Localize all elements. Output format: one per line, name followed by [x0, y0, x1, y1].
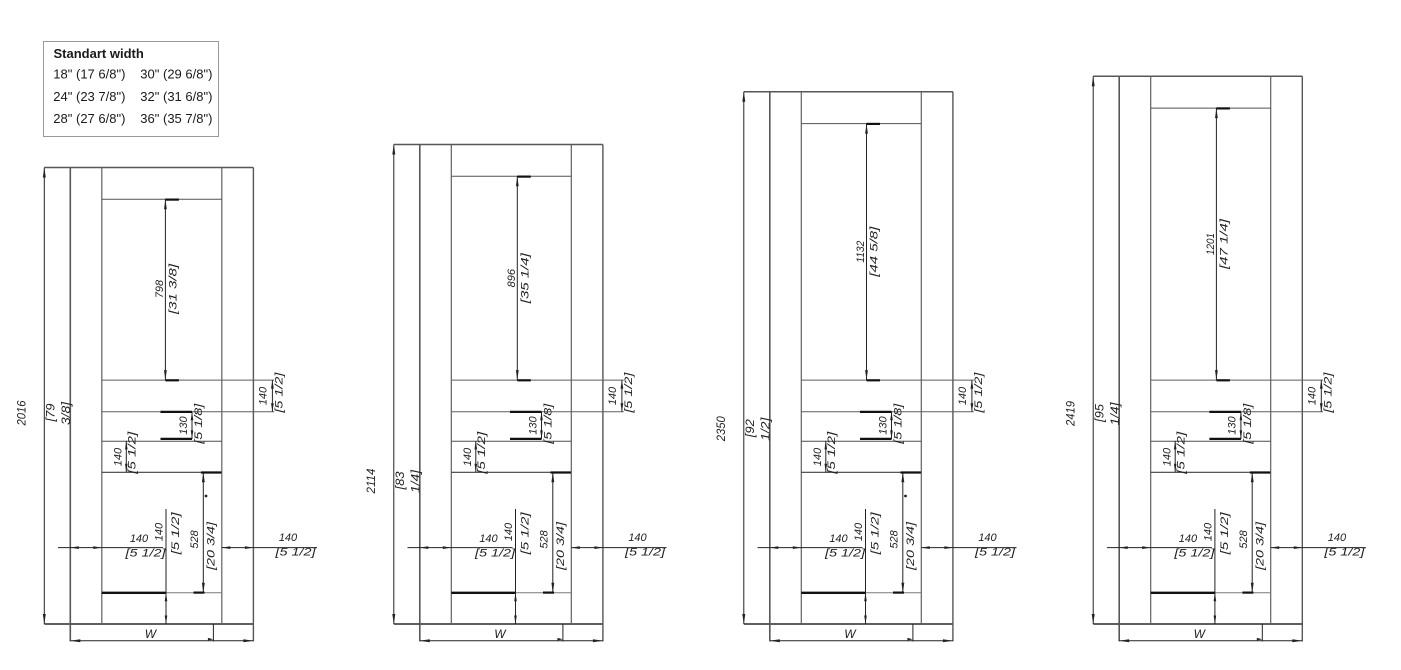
svg-text:140: 140	[1328, 532, 1347, 544]
svg-text:[20 3/4]: [20 3/4]	[1254, 521, 1266, 572]
svg-text:2419: 2419	[1063, 401, 1077, 427]
svg-text:130: 130	[1227, 415, 1239, 434]
svg-text:140: 140	[112, 447, 124, 466]
svg-text:[5 1/8]: [5 1/8]	[893, 402, 905, 445]
svg-text:[5 1/2]: [5 1/2]	[126, 431, 138, 476]
svg-text:528: 528	[1238, 529, 1250, 548]
svg-text:140: 140	[258, 386, 270, 405]
svg-text:[5 1/2]: [5 1/2]	[869, 511, 881, 556]
svg-text:140: 140	[503, 522, 515, 541]
svg-text:[20 3/4]: [20 3/4]	[206, 521, 218, 572]
svg-text:140: 140	[978, 532, 997, 544]
svg-text:30" (29 6/8"): 30" (29 6/8")	[140, 67, 212, 82]
svg-text:[20 3/4]: [20 3/4]	[905, 521, 917, 572]
svg-text:36" (35 7/8"): 36" (35 7/8")	[140, 111, 212, 126]
svg-text:[5 1/8]: [5 1/8]	[193, 402, 205, 445]
svg-text:528: 528	[889, 529, 901, 548]
svg-text:W: W	[844, 627, 857, 641]
svg-text:140: 140	[829, 533, 848, 545]
svg-text:140: 140	[1202, 522, 1214, 541]
svg-text:[5 1/2]: [5 1/2]	[973, 371, 985, 414]
svg-text:W: W	[1194, 627, 1207, 641]
svg-text:140: 140	[279, 532, 298, 544]
svg-text:[5 1/2]: [5 1/2]	[474, 547, 517, 559]
svg-text:528: 528	[189, 529, 201, 548]
svg-text:130: 130	[527, 415, 539, 434]
svg-text:[5 1/2]: [5 1/2]	[170, 511, 182, 556]
svg-text:2016: 2016	[15, 400, 29, 426]
svg-text:130: 130	[877, 415, 889, 434]
svg-text:[5 1/2]: [5 1/2]	[1219, 511, 1231, 556]
svg-text:32" (31 6/8"): 32" (31 6/8")	[140, 89, 212, 104]
svg-text:[95: [95	[1093, 404, 1107, 423]
svg-text:798: 798	[154, 279, 166, 298]
svg-text:2114: 2114	[364, 468, 378, 494]
svg-text:[35 1/4]: [35 1/4]	[519, 252, 531, 305]
svg-text:28" (27 6/8"): 28" (27 6/8")	[53, 111, 125, 126]
svg-text:140: 140	[1161, 447, 1173, 466]
svg-text:[5 1/2]: [5 1/2]	[624, 546, 667, 558]
svg-text:[5 1/2]: [5 1/2]	[1175, 431, 1187, 476]
svg-text:130: 130	[178, 415, 190, 434]
svg-text:140: 140	[479, 533, 498, 545]
svg-text:[5 1/2]: [5 1/2]	[476, 431, 488, 476]
svg-text:Standart width: Standart width	[54, 46, 144, 61]
svg-text:1/4]: 1/4]	[1108, 402, 1122, 426]
svg-text:[5 1/8]: [5 1/8]	[1242, 402, 1254, 445]
svg-text:140: 140	[957, 386, 969, 405]
svg-text:2350: 2350	[714, 416, 728, 442]
svg-text:[5 1/2]: [5 1/2]	[623, 371, 635, 414]
svg-text:[5 1/2]: [5 1/2]	[974, 546, 1017, 558]
svg-text:[5 1/2]: [5 1/2]	[826, 431, 838, 476]
svg-text:140: 140	[628, 532, 647, 544]
svg-text:[83: [83	[393, 471, 407, 490]
svg-text:[20 3/4]: [20 3/4]	[555, 521, 567, 572]
svg-text:[44 5/8]: [44 5/8]	[869, 225, 881, 278]
svg-text:[5 1/2]: [5 1/2]	[1322, 371, 1334, 414]
svg-text:W: W	[494, 627, 507, 641]
svg-text:[5 1/2]: [5 1/2]	[1173, 547, 1216, 559]
svg-text:1132: 1132	[855, 241, 867, 263]
svg-text:140: 140	[462, 447, 474, 466]
svg-text:W: W	[145, 627, 158, 641]
svg-text:140: 140	[607, 386, 619, 405]
svg-text:[5 1/2]: [5 1/2]	[274, 546, 317, 558]
svg-text:[47 1/4]: [47 1/4]	[1218, 218, 1230, 271]
svg-text:140: 140	[1179, 533, 1198, 545]
svg-text:[5 1/2]: [5 1/2]	[824, 547, 867, 559]
svg-text:140: 140	[1306, 386, 1318, 405]
svg-text:3/8]: 3/8]	[59, 401, 73, 425]
svg-text:18" (17 6/8"): 18" (17 6/8")	[53, 67, 125, 82]
svg-text:24" (23 7/8"): 24" (23 7/8")	[53, 89, 125, 104]
svg-text:1201: 1201	[1205, 233, 1217, 255]
svg-text:[5 1/2]: [5 1/2]	[519, 511, 531, 556]
svg-text:[5 1/2]: [5 1/2]	[124, 547, 167, 559]
svg-text:[5 1/2]: [5 1/2]	[273, 371, 285, 414]
svg-text:1/2]: 1/2]	[759, 417, 773, 441]
svg-text:896: 896	[506, 268, 518, 287]
svg-text:1/4]: 1/4]	[409, 469, 423, 493]
svg-text:140: 140	[853, 522, 865, 541]
svg-text:140: 140	[812, 447, 824, 466]
svg-text:[79: [79	[44, 403, 58, 422]
svg-text:[5 1/8]: [5 1/8]	[543, 402, 555, 445]
svg-text:[5 1/2]: [5 1/2]	[1323, 546, 1366, 558]
svg-text:528: 528	[539, 529, 551, 548]
svg-text:140: 140	[154, 522, 166, 541]
svg-text:140: 140	[130, 533, 149, 545]
svg-text:[31 3/8]: [31 3/8]	[167, 263, 179, 316]
svg-text:[92: [92	[743, 419, 757, 438]
